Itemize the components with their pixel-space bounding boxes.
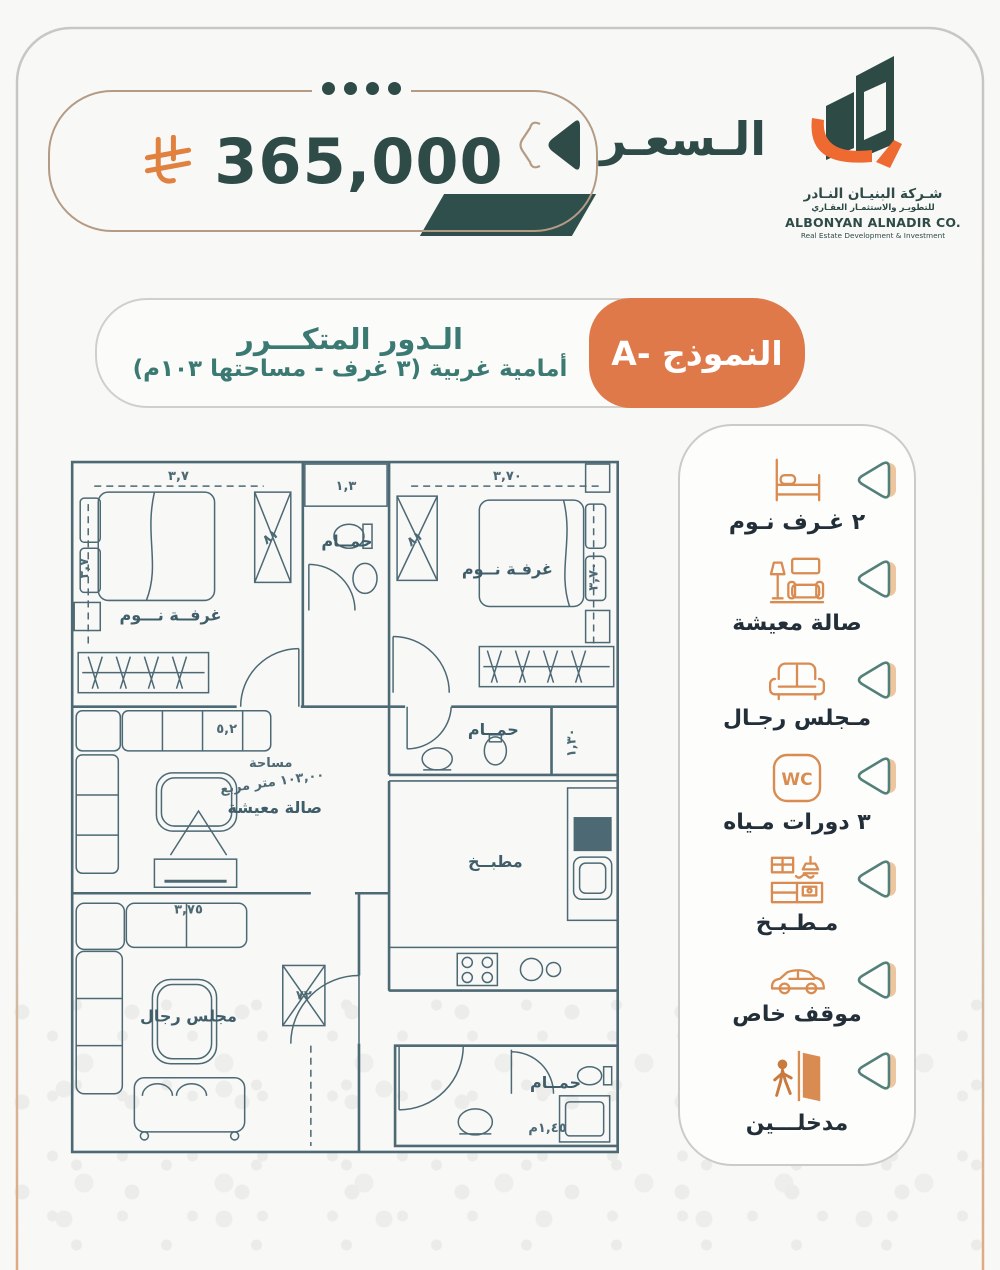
logo-building-icon xyxy=(798,48,948,180)
room-label-living: صالة معيشة xyxy=(228,798,322,817)
logo-company-name-ar: شـركة البنيـان النـادر xyxy=(778,186,968,202)
pointer-arrow-icon xyxy=(852,859,898,903)
floor-title: الـدور المتكـــرر xyxy=(237,323,463,356)
living-area-word: مساحة xyxy=(249,756,292,771)
dim-majlis: ٣,٧٥ xyxy=(174,902,203,917)
amenity-label: موقف خاص xyxy=(732,1002,861,1027)
room-label-bedroom2: غرفـة نــوم xyxy=(462,559,553,578)
wc-icon: WC xyxy=(769,750,825,806)
decor-dots xyxy=(312,82,411,95)
model-tab: النموذج -A xyxy=(589,298,805,408)
car-icon xyxy=(766,954,828,998)
amenity-label: مـجلس رجـال xyxy=(723,706,871,731)
pointer-arrow-icon xyxy=(852,460,898,504)
amenity-majlis: مـجلس رجـال xyxy=(680,654,914,731)
amenity-label: مـطـبـخ xyxy=(756,911,838,936)
price-pointer-icon xyxy=(516,112,586,178)
room-label-kitchen: مطبــخ xyxy=(468,852,523,871)
amenity-parking: موقف خاص xyxy=(680,954,914,1027)
dim-bathroom-bottom: ١,٤٥م xyxy=(528,1121,566,1136)
dim-bathroom-top: ١,٣ xyxy=(336,479,357,494)
floor-plan: غرفــة نـــوم غرفـة نــوم حمــام حمــام … xyxy=(58,444,672,1162)
amenity-living-room: صالة معيشة xyxy=(680,553,914,636)
amenity-label: ٣ دورات مـياه xyxy=(723,810,870,835)
bed-icon xyxy=(768,454,826,506)
kitchen-fixtures xyxy=(389,788,618,991)
sofa-icon xyxy=(767,654,827,702)
company-logo: شـركة البنيـان النـادر للتطويـر والاستثم… xyxy=(778,48,968,240)
dim-closet2: ٨١ xyxy=(404,529,426,550)
bedroom1-furniture xyxy=(74,492,291,693)
price-value: 365,000 xyxy=(214,125,503,198)
amenities-panel: ٢ غـرف نـوم صالة معيشة xyxy=(678,424,916,1166)
room-label-bathroom-bottom: حمــام xyxy=(530,1073,581,1092)
entrance-icon xyxy=(766,1045,828,1107)
floor-subtitle: أمامية غربية (٣ غرف - مساحتها ١٠٣م) xyxy=(133,356,568,384)
logo-company-name-en: ALBONYAN ALNADIR CO. xyxy=(778,215,968,230)
pointer-arrow-icon xyxy=(852,660,898,704)
amenity-label: ٢ غـرف نـوم xyxy=(729,510,865,535)
amenity-kitchen: مـطـبـخ xyxy=(680,853,914,936)
dim-closet1: ٨١ xyxy=(260,527,282,548)
svg-text:WC: WC xyxy=(781,770,812,790)
dim-bedroom2-right: ٣,٧٠ xyxy=(587,562,602,591)
dim-bedroom1-left: ٣,٧ xyxy=(77,558,92,579)
model-name: النموذج -A xyxy=(611,334,782,373)
amenity-bedrooms: ٢ غـرف نـوم xyxy=(680,454,914,535)
room-label-bathroom-top: حمــام xyxy=(321,531,372,550)
bathroom-fixtures xyxy=(334,524,612,1142)
pointer-arrow-icon xyxy=(852,756,898,800)
amenity-bathrooms: WC ٣ دورات مـياه xyxy=(680,750,914,835)
price-label: الـسعـر xyxy=(596,112,766,166)
logo-tagline-ar: للتطويـر والاستثمـار العقـاري xyxy=(778,203,968,213)
living-room-icon xyxy=(767,553,827,607)
saudi-riyal-icon xyxy=(142,135,194,187)
amenity-entrances: مدخلـــين xyxy=(680,1045,914,1136)
pointer-arrow-icon xyxy=(852,960,898,1004)
living-area-value: ١٠٣,٠٠ متر مربع xyxy=(219,768,325,797)
amenity-label: مدخلـــين xyxy=(746,1111,849,1136)
plan-room-labels: غرفــة نـــوم غرفـة نــوم حمــام حمــام … xyxy=(119,531,581,1092)
logo-tagline-en: Real Estate Development & Investment xyxy=(778,231,968,240)
kitchen-icon xyxy=(767,853,827,907)
amenity-label: صالة معيشة xyxy=(732,611,862,636)
model-banner: النموذج -A الـدور المتكـــرر أمامية غربي… xyxy=(95,298,805,408)
dim-shaft: ٧٢ xyxy=(296,989,312,1004)
dim-bathroom-middle: ١,٣٠ xyxy=(565,728,580,757)
pointer-arrow-icon xyxy=(852,559,898,603)
room-label-majlis: مجلس رجال xyxy=(140,1007,237,1026)
dim-living: ٥,٢ xyxy=(216,722,237,737)
dim-bedroom2-top: ٣,٧٠ xyxy=(493,469,522,484)
room-label-bedroom1: غرفــة نـــوم xyxy=(119,605,221,624)
pointer-arrow-icon xyxy=(852,1051,898,1095)
dim-bedroom1-top: ٣,٧ xyxy=(168,469,189,484)
real-estate-flyer: 365,000 الـسعـر شـركة البنيـان النـادر ل… xyxy=(0,0,1000,1270)
room-label-bathroom-middle: حمــام xyxy=(468,720,519,739)
banner-texts: الـدور المتكـــرر أمامية غربية (٣ غرف - … xyxy=(117,300,583,406)
